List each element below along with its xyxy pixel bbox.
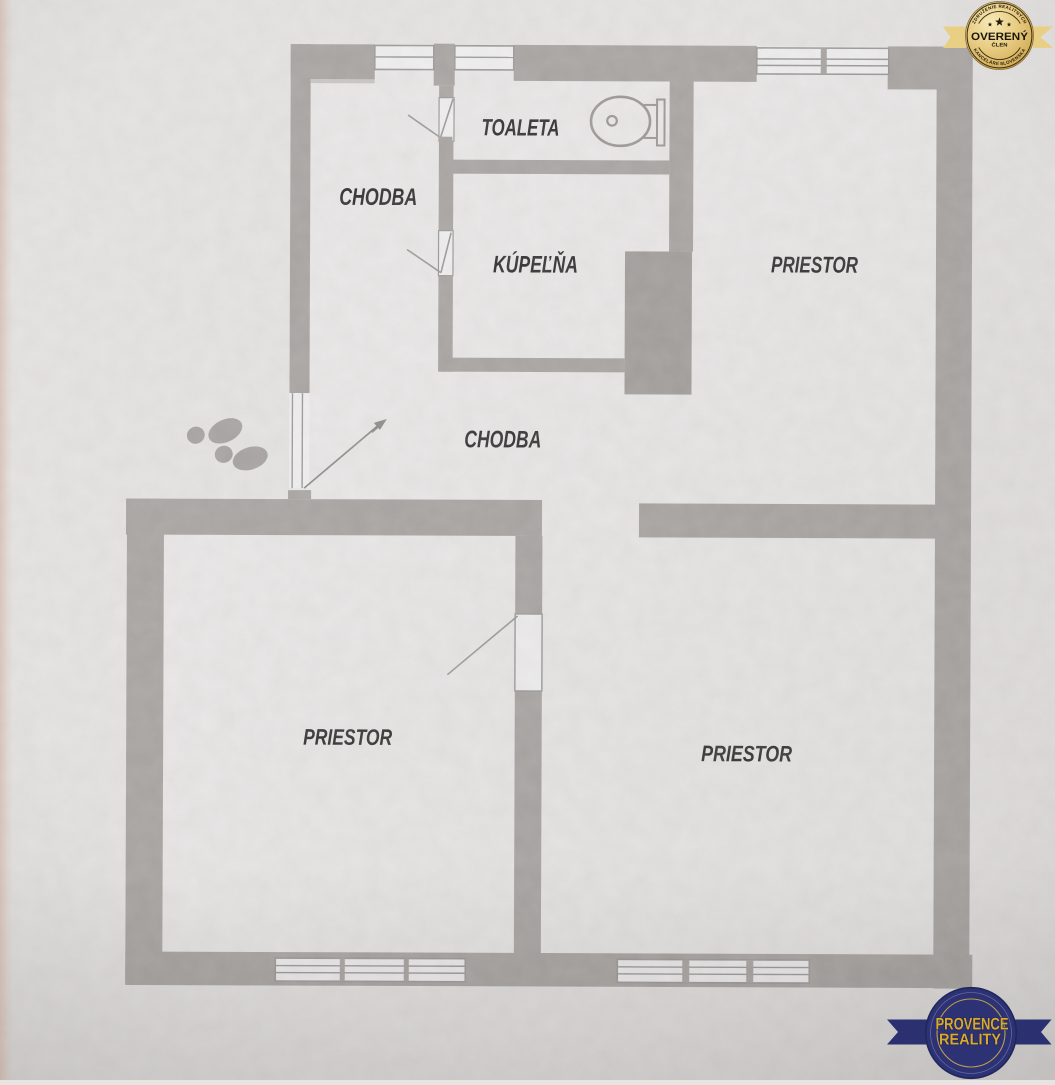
svg-text:ČLEN: ČLEN [992, 42, 1008, 49]
svg-text:REALITY: REALITY [939, 1032, 1001, 1049]
svg-text:OVERENÝ: OVERENÝ [971, 30, 1029, 43]
